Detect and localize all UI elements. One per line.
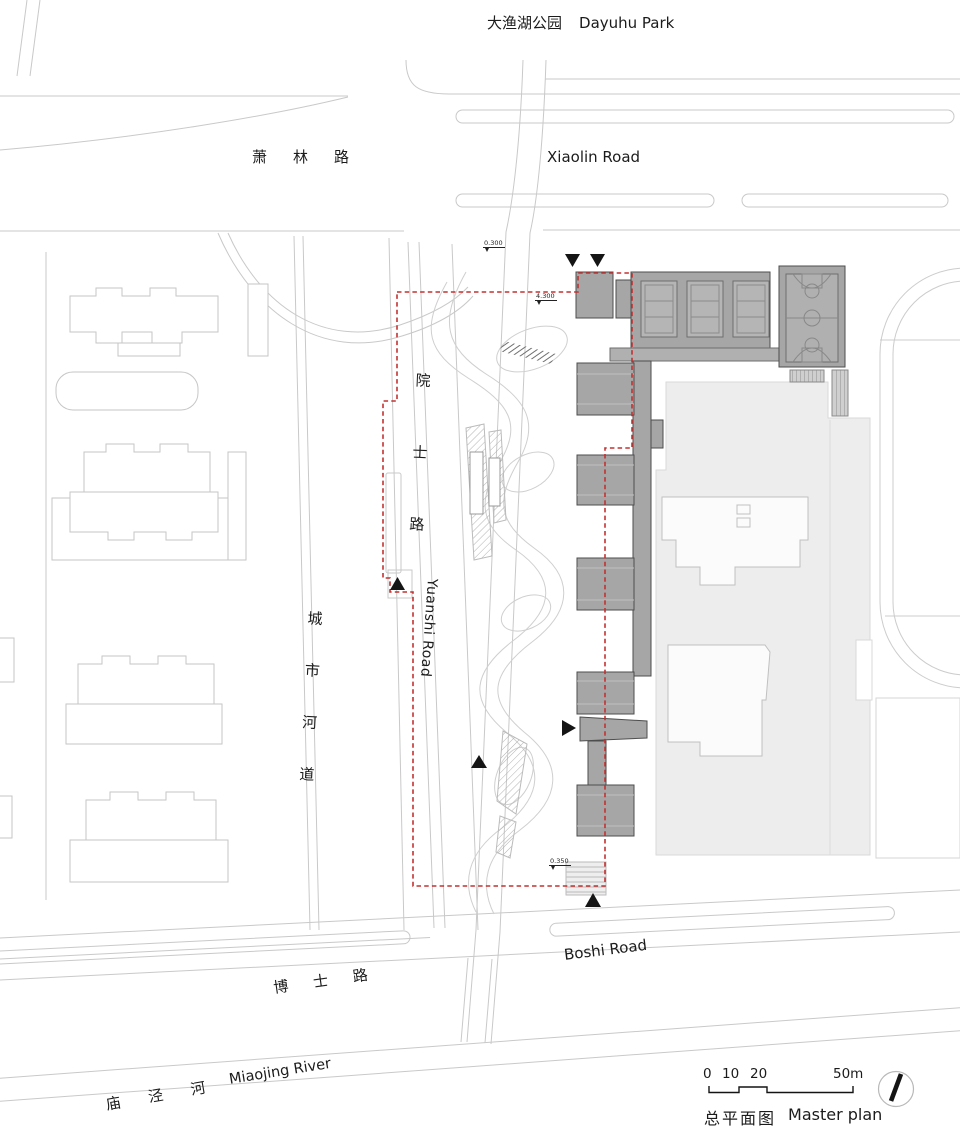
entrance-marker-down-icon xyxy=(565,254,580,267)
running-track xyxy=(876,268,960,858)
landscape-paths xyxy=(431,272,574,914)
xiaolin-road-label-cn: 萧林路 xyxy=(252,146,375,167)
elevation-value: 4.300 xyxy=(535,293,557,301)
tennis-courts xyxy=(641,281,769,337)
roads-south xyxy=(0,890,960,1102)
elevation-marker: 0.300 xyxy=(483,240,505,252)
elevation-triangle-icon xyxy=(551,866,555,870)
context-buildings-west xyxy=(0,284,268,882)
scale-tick: 10 xyxy=(722,1066,739,1082)
scale-tick: 50m xyxy=(833,1066,863,1082)
drawing-title-cn: 总平面图 xyxy=(704,1105,776,1129)
xiaolin-road-label-en: Xiaolin Road xyxy=(547,148,640,166)
scale-tick: 0 xyxy=(703,1066,712,1082)
north-arrow-icon xyxy=(879,1072,914,1107)
elevation-value: 0.300 xyxy=(483,240,505,248)
entrance-marker-up-icon xyxy=(471,755,487,768)
elevation-triangle-icon xyxy=(485,248,489,252)
entrance-marker-down-icon xyxy=(590,254,605,267)
north-needle xyxy=(891,1074,901,1101)
park-label-en: Dayuhu Park xyxy=(579,14,674,32)
elevation-triangle-icon xyxy=(537,301,541,305)
park-label-cn: 大渔湖公园 xyxy=(487,12,562,33)
scale-tick: 20 xyxy=(750,1066,767,1082)
park-label: 大渔湖公园 Dayuhu Park xyxy=(487,12,674,33)
elevation-value: 0.350 xyxy=(549,858,571,866)
stairs-hatch xyxy=(566,862,606,895)
basketball-court xyxy=(786,274,838,362)
elevation-marker: 4.300 xyxy=(535,293,557,305)
context-campus-east xyxy=(656,382,872,855)
siteplan-linework xyxy=(0,0,960,1143)
master-plan-canvas: 大渔湖公园 Dayuhu Park 萧林路 Xiaolin Road 院士路 Y… xyxy=(0,0,960,1143)
scale-bar-line xyxy=(709,1086,853,1093)
drawing-title: 总平面图 Master plan xyxy=(704,1105,882,1129)
elevation-marker: 0.350 xyxy=(549,858,571,870)
drawing-title-en: Master plan xyxy=(788,1105,882,1129)
entrance-marker-right-icon xyxy=(562,720,576,736)
